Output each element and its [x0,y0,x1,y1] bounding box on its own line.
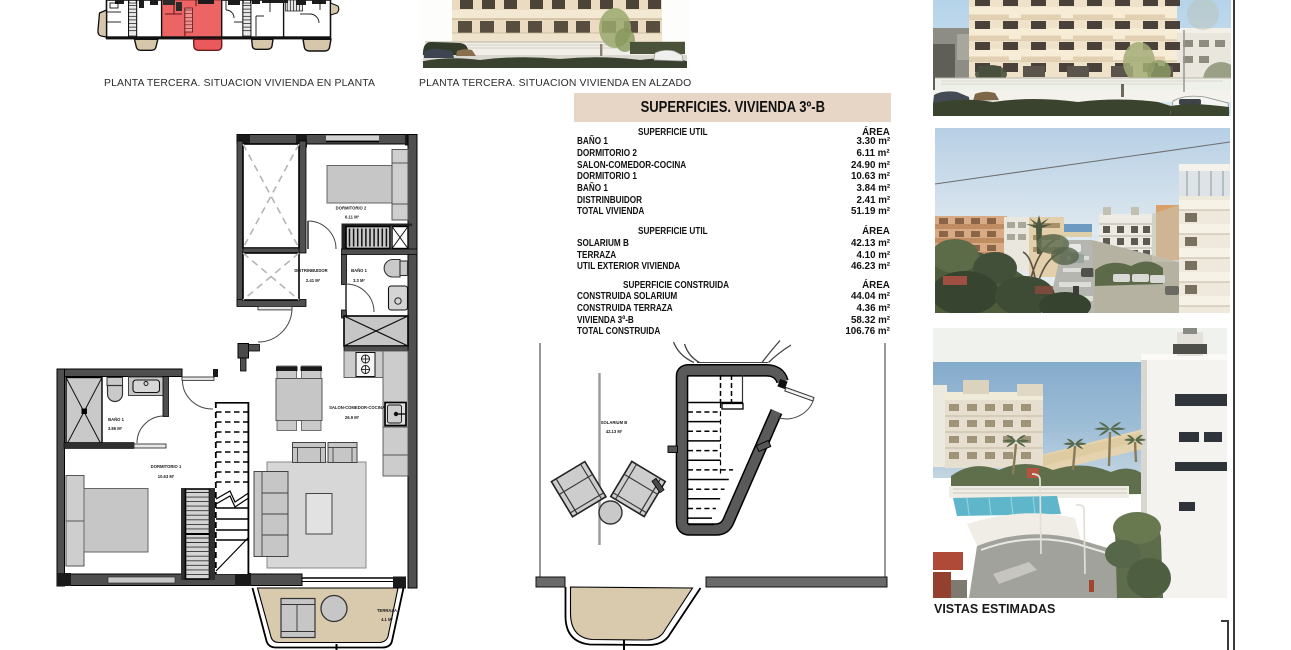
svg-text:BAÑO 1: BAÑO 1 [108,417,124,422]
svg-text:2.41 M²: 2.41 M² [306,278,321,283]
svg-text:6.11 M²: 6.11 M² [345,215,360,220]
svg-text:SOLARIUM B: SOLARIUM B [601,420,628,425]
svg-text:42.13 M²: 42.13 M² [606,429,623,434]
svg-text:DORMITORIO 2: DORMITORIO 2 [336,206,367,211]
svg-text:SALON-COMEDOR-COCINA: SALON-COMEDOR-COCINA [329,405,385,410]
svg-text:3.86 M²: 3.86 M² [108,426,123,431]
svg-text:4.1 M²: 4.1 M² [381,617,393,622]
svg-text:3.3 M²: 3.3 M² [353,278,365,283]
svg-text:DORMITORIO 1: DORMITORIO 1 [151,464,182,469]
svg-text:TERRAZA: TERRAZA [377,608,397,613]
svg-text:26.9 M²: 26.9 M² [345,415,360,420]
svg-text:DISTRINBUIDOR: DISTRINBUIDOR [294,268,327,273]
svg-text:10.63 M²: 10.63 M² [158,474,175,479]
svg-text:BAÑO 1: BAÑO 1 [351,268,367,273]
